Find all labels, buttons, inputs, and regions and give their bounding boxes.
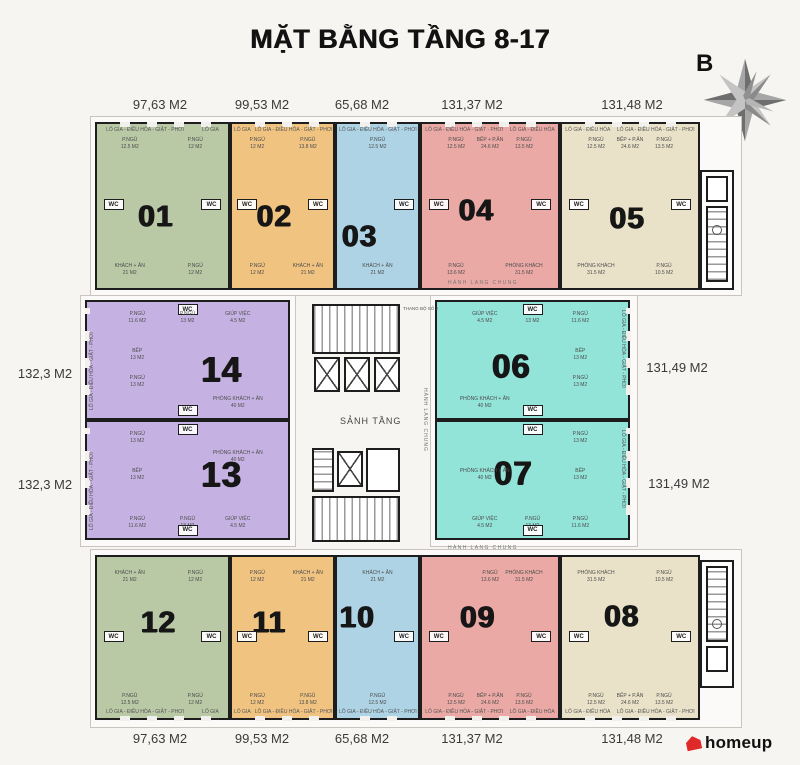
- balcony-labels: LÔ GIA - ĐIỀU HÒA - GIẶT - PHƠI: [89, 310, 95, 410]
- wc-label: WC: [178, 405, 198, 416]
- area-label-bottom-10: 65,68 M2: [335, 731, 389, 746]
- unit-number: 14: [201, 353, 242, 388]
- room-label: P.NGỦ12.5 M2: [360, 693, 396, 707]
- wc-label: WC: [429, 631, 449, 642]
- room-label: BẾP13 M2: [538, 348, 622, 362]
- stairwell-bottom: [312, 496, 400, 542]
- unit-05: 05P.NGỦ12.5 M2BẾP + P.ĂN24.6 M2P.NGỦ13.5…: [560, 122, 700, 290]
- corridor-label-top: HÀNH LANG CHUNG: [448, 280, 518, 286]
- unit-10: 10KHÁCH + ĂN21 M2WCP.NGỦ12.5 M2LÔ GIA - …: [335, 555, 420, 720]
- room-label: P.NGỦ12 M2: [166, 570, 224, 584]
- wc-label: WC: [523, 405, 543, 416]
- room-label: PHÒNG KHÁCH31.5 M2: [494, 263, 554, 277]
- unit-09: 09P.NGỦ13.6 M2PHÒNG KHÁCH31.5 M2WCWCP.NG…: [420, 555, 560, 720]
- room-label: P.NGỦ13 M2: [538, 375, 622, 389]
- balcony-labels: LÔ GIALÔ GIA - ĐIỀU HÒA - GIẶT - PHƠI: [234, 127, 331, 133]
- room-label: PHÒNG KHÁCH + ĂN40 M2: [443, 468, 527, 482]
- area-label-top-01: 97,63 M2: [133, 97, 187, 112]
- room-label: BẾP13 M2: [93, 468, 181, 482]
- room-label: BẾP13 M2: [93, 348, 181, 362]
- wc-label: WC: [569, 631, 589, 642]
- unit-02: 02P.NGỦ12 M2P.NGỦ13.8 M2WCWCP.NGỦ12 M2KH…: [230, 122, 335, 290]
- balcony-labels: LÔ GIA - ĐIỀU HÒA - GIẶT - PHƠILÔ GIA - …: [424, 709, 556, 715]
- room-label: P.NGỦ13 M2: [93, 375, 181, 389]
- balcony-labels: LÔ GIA - ĐIỀU HÒA - GIẶT - PHƠILÔ GIA - …: [424, 127, 556, 133]
- room-label: P.NGỦ12 M2: [235, 570, 279, 584]
- room-label: BẾP13 M2: [538, 468, 622, 482]
- room-label: P.NGỦ11.6 M2: [538, 311, 622, 325]
- unit-number: 05: [610, 204, 645, 234]
- wc-label: WC: [237, 631, 257, 642]
- room-label: P.NGỦ12.5 M2: [360, 137, 396, 151]
- room-label: P.NGỦ10.5 M2: [634, 263, 694, 277]
- room-label: KHÁCH + ĂN21 M2: [101, 263, 159, 277]
- room-label: P.NGỦ13.6 M2: [426, 263, 486, 277]
- room-label: P.NGỦ12 M2: [166, 263, 224, 277]
- area-label-bottom-12: 97,63 M2: [133, 731, 187, 746]
- wc-label: WC: [671, 199, 691, 210]
- balcony-labels: LÔ GIA - ĐIỀU HÒA - GIẶT - PHƠI: [620, 430, 626, 530]
- area-label-right-06: 131,49 M2: [646, 360, 707, 375]
- unit-number: 02: [257, 202, 292, 232]
- unit-number: 11: [253, 608, 287, 638]
- wc-label: WC: [531, 199, 551, 210]
- wc-label: WC: [308, 199, 328, 210]
- wc-label: WC: [394, 631, 414, 642]
- unit-13: 13WCP.NGỦ13 M2PHÒNG KHÁCH + ĂN40 M2BẾP13…: [85, 420, 290, 540]
- room-label: PHÒNG KHÁCH31.5 M2: [566, 263, 626, 277]
- unit-01: 01P.NGỦ12.5 M2P.NGỦ12 M2WCWCKHÁCH + ĂN21…: [95, 122, 230, 290]
- room-label: P.NGỦ13.5 M2: [634, 137, 694, 151]
- wc-label: WC: [104, 631, 124, 642]
- room-label: KHÁCH + ĂN21 M2: [286, 263, 330, 277]
- stair-annex-bottom: [700, 560, 734, 688]
- unit-14: 14WCP.NGỦ11.6 M2P.NGỦ13 M2GIÚP VIỆC4.5 M…: [85, 300, 290, 420]
- room-label: P.NGỦ13.5 M2: [494, 693, 554, 707]
- room-label: P.NGỦ13.8 M2: [286, 693, 330, 707]
- unit-11: 11P.NGỦ12 M2KHÁCH + ĂN21 M2WCWCP.NGỦ12 M…: [230, 555, 335, 720]
- balcony-labels: LÔ GIA - ĐIỀU HÒA - GIẶT - PHƠI: [89, 430, 95, 530]
- area-label-top-05: 131,48 M2: [601, 97, 662, 112]
- unit-number: 10: [340, 603, 375, 633]
- unit-number: 12: [141, 608, 176, 638]
- balcony-labels: LÔ GIA - ĐIỀU HÒA - GIẶT - PHƠI: [339, 127, 416, 133]
- area-label-bottom-09: 131,37 M2: [441, 731, 502, 746]
- stair-annex-top: [700, 170, 734, 290]
- wc-label: WC: [178, 525, 198, 536]
- balcony-labels: LÔ GIA - ĐIỀU HÒA - GIẶT - PHƠI: [339, 709, 416, 715]
- room-label: GIÚP VIỆC4.5 M2: [194, 311, 282, 325]
- room-label: GIÚP VIỆC4.5 M2: [194, 516, 282, 530]
- wc-label: WC: [308, 631, 328, 642]
- unit-07: 07WCPHÒNG KHÁCH + ĂN40 M2P.NGỦ13 M2BẾP13…: [435, 420, 630, 540]
- room-label: P.NGỦ12.5 M2: [101, 137, 159, 151]
- stairwell-top: [312, 304, 400, 354]
- annex-stair: [706, 566, 728, 642]
- corridor-label-middle: HÀNH LANG CHUNG: [422, 388, 428, 452]
- wc-label: WC: [394, 199, 414, 210]
- elevator-icon: [374, 357, 400, 392]
- room-label: KHÁCH + ĂN21 M2: [360, 263, 396, 277]
- balcony-labels: LÔ GIA - ĐIỀU HÒALÔ GIA - ĐIỀU HÒA - GIẶ…: [564, 709, 696, 715]
- room-label: KHÁCH + ĂN21 M2: [286, 570, 330, 584]
- balcony-labels: LÔ GIA - ĐIỀU HÒA - GIẶT - PHƠILÔ GIA: [99, 709, 226, 715]
- balcony-labels: LÔ GIA - ĐIỀU HÒALÔ GIA - ĐIỀU HÒA - GIẶ…: [564, 127, 696, 133]
- room-label: P.NGỦ13 M2: [538, 431, 622, 445]
- corridor-label-bottom: HÀNH LANG CHUNG: [448, 545, 518, 551]
- service-room: [366, 448, 400, 492]
- room-label: P.NGỦ12 M2: [235, 263, 279, 277]
- room-label: P.NGỦ13 M2: [93, 431, 181, 445]
- unit-number: 06: [492, 349, 531, 382]
- unit-06: 06GIÚP VIỆC4.5 M2P.NGỦ13 M2WCP.NGỦ11.6 M…: [435, 300, 630, 420]
- homeup-logo: homeup: [686, 733, 772, 753]
- balcony-labels: LÔ GIA - ĐIỀU HÒA - GIẶT - PHƠI: [620, 310, 626, 410]
- room-label: P.NGỦ12.5 M2: [101, 693, 159, 707]
- elevator-icon: [337, 451, 363, 487]
- unit-number: 09: [460, 603, 495, 633]
- room-label: PHÒNG KHÁCH + ĂN40 M2: [194, 396, 282, 410]
- unit-03: 03P.NGỦ12.5 M2WCKHÁCH + ĂN21 M2LÔ GIA - …: [335, 122, 420, 290]
- wc-label: WC: [201, 631, 221, 642]
- annex-stair: [706, 206, 728, 282]
- unit-number: 03: [342, 222, 377, 252]
- elevator-icon: [344, 357, 370, 392]
- unit-12: 12KHÁCH + ĂN21 M2P.NGỦ12 M2WCWCP.NGỦ12.5…: [95, 555, 230, 720]
- wc-label: WC: [569, 199, 589, 210]
- room-label: P.NGỦ11.6 M2: [538, 516, 622, 530]
- elevator-icon: [314, 357, 340, 392]
- house-icon: [685, 735, 703, 752]
- wc-label: WC: [237, 199, 257, 210]
- stair-note: THANG BỘ SỐ 2: [403, 306, 447, 312]
- area-label-bottom-11: 99,53 M2: [235, 731, 289, 746]
- area-label-bottom-08: 131,48 M2: [601, 731, 662, 746]
- room-label: P.NGỦ12 M2: [166, 137, 224, 151]
- room-label: PHÒNG KHÁCH31.5 M2: [566, 570, 626, 584]
- service-lift-icon: [706, 646, 728, 672]
- wc-label: WC: [671, 631, 691, 642]
- wc-label: WC: [531, 631, 551, 642]
- balcony-labels: LÔ GIALÔ GIA - ĐIỀU HÒA - GIẶT - PHƠI: [234, 709, 331, 715]
- room-label: P.NGỦ12 M2: [235, 693, 279, 707]
- wc-label: WC: [201, 199, 221, 210]
- unit-number: 04: [459, 196, 494, 226]
- area-label-left-14: 132,3 M2: [18, 366, 72, 381]
- area-label-left-13: 132,3 M2: [18, 477, 72, 492]
- room-label: P.NGỦ13.8 M2: [286, 137, 330, 151]
- room-label: KHÁCH + ĂN21 M2: [101, 570, 159, 584]
- room-label: PHÒNG KHÁCH + ĂN40 M2: [194, 450, 282, 464]
- room-label: P.NGỦ12 M2: [166, 693, 224, 707]
- unit-number: 08: [604, 602, 639, 632]
- wc-label: WC: [429, 199, 449, 210]
- unit-number: 01: [138, 202, 173, 232]
- unit-04: 04P.NGỦ12.5 M2BẾP + P.ĂN24.6 M2P.NGỦ13.5…: [420, 122, 560, 290]
- area-label-top-02: 99,53 M2: [235, 97, 289, 112]
- room-label: KHÁCH + ĂN21 M2: [360, 570, 396, 584]
- service-stair: [312, 448, 334, 492]
- lobby-label: SẢNH TẦNG: [340, 416, 401, 426]
- room-label: P.NGỦ10.5 M2: [634, 570, 694, 584]
- area-label-top-03: 65,68 M2: [335, 97, 389, 112]
- room-label: PHÒNG KHÁCH + ĂN40 M2: [443, 396, 527, 410]
- area-label-right-07: 131,49 M2: [648, 476, 709, 491]
- wc-label: WC: [104, 199, 124, 210]
- logo-text: homeup: [705, 733, 772, 753]
- room-label: PHÒNG KHÁCH31.5 M2: [494, 570, 554, 584]
- area-label-top-04: 131,37 M2: [441, 97, 502, 112]
- wc-label: WC: [523, 525, 543, 536]
- room-label: P.NGỦ13.5 M2: [494, 137, 554, 151]
- room-label: P.NGỦ13.5 M2: [634, 693, 694, 707]
- service-lift-icon: [706, 176, 728, 202]
- floor-plan: 01P.NGỦ12.5 M2P.NGỦ12 M2WCWCKHÁCH + ĂN21…: [0, 0, 800, 765]
- unit-08: 08PHÒNG KHÁCH31.5 M2P.NGỦ10.5 M2WCWCP.NG…: [560, 555, 700, 720]
- room-label: P.NGỦ12 M2: [235, 137, 279, 151]
- balcony-labels: LÔ GIA - ĐIỀU HÒA - GIẶT - PHƠILÔ GIA: [99, 127, 226, 133]
